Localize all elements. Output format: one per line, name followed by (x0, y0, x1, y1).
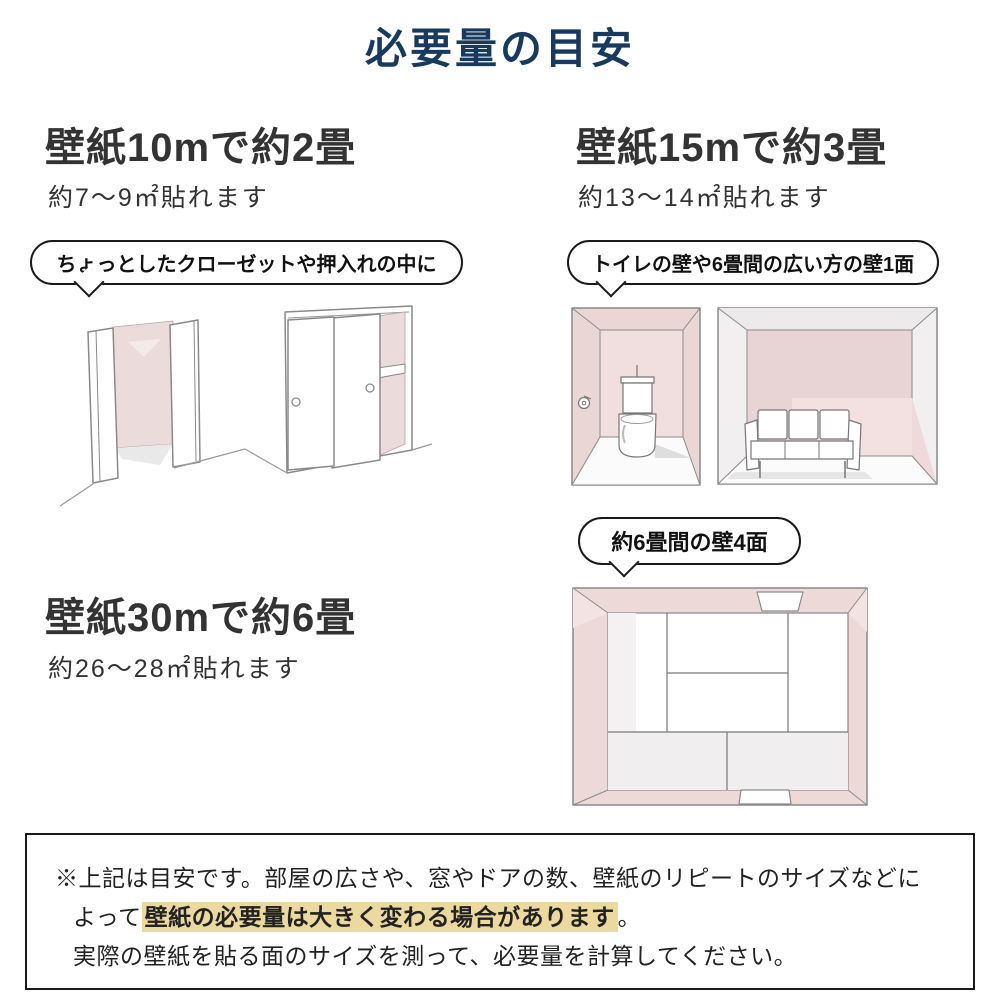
note-line-3: 実際の壁紙を貼る面のサイズを測って、必要量を計算してください。 (73, 937, 945, 976)
note-line-1: ※上記は目安です。部屋の広さや、窓やドアの数、壁紙のリピートのサイズなどに (55, 859, 945, 898)
closet-open-doors-illustration (40, 298, 470, 515)
heading-15m: 壁紙15mで約3畳 (576, 128, 887, 168)
door-handle-icon (292, 398, 300, 406)
toilet-and-room-illustration (555, 298, 950, 493)
closet-open-doors (60, 320, 245, 506)
note-line-2-prefix: よって (73, 904, 142, 930)
room-opening-bottom (739, 790, 791, 804)
subtitle-30m: 約26〜28㎡貼れます (48, 654, 301, 684)
six-tatami-room-top-view-illustration (563, 580, 953, 810)
toilet-icon (619, 365, 656, 457)
six-tatami-living-room (718, 308, 937, 484)
toilet-room (572, 308, 700, 485)
room-opening-top (757, 592, 803, 611)
note-line-2: よって壁紙の必要量は大きく変わる場合があります。 (73, 898, 945, 937)
oshiire-sliding-doors (245, 306, 432, 473)
six-tatami-room-top-view (573, 588, 867, 805)
heading-10m: 壁紙10mで約2畳 (45, 128, 356, 168)
subtitle-10m: 約7〜9㎡貼れます (48, 183, 269, 213)
heading-30m: 壁紙30mで約6畳 (45, 598, 356, 638)
wallpaper-quantity-guide: 必要量の目安 壁紙10mで約2畳 約7〜9㎡貼れます ちょっとしたクローゼットや… (0, 0, 1000, 1000)
note-highlight: 壁紙の必要量は大きく変わる場合があります (142, 902, 618, 932)
subtitle-15m: 約13〜14㎡貼れます (578, 183, 831, 213)
page-title: 必要量の目安 (0, 26, 1000, 72)
note-line-2-suffix: 。 (618, 904, 642, 930)
note-box: ※上記は目安です。部屋の広さや、窓やドアの数、壁紙のリピートのサイズなどに よっ… (25, 833, 975, 990)
door-handle-icon (366, 384, 374, 392)
